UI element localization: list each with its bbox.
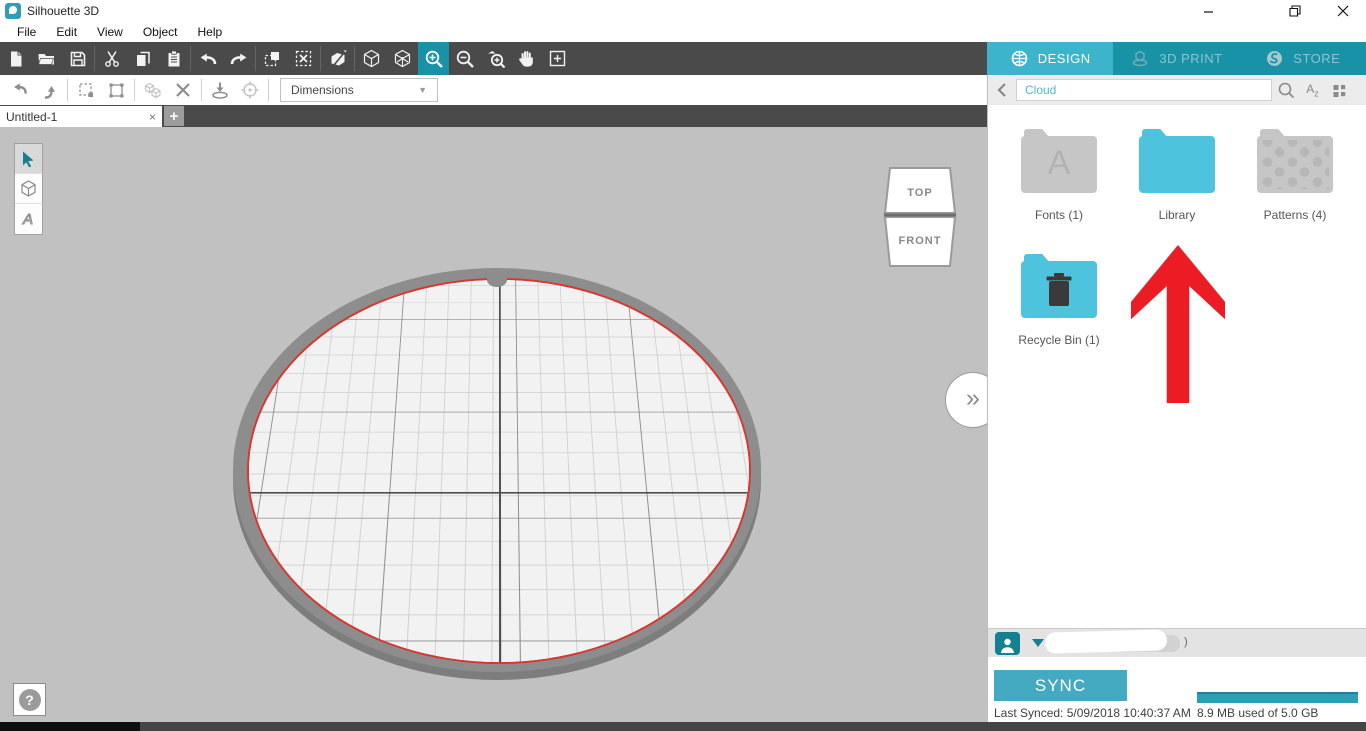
tab-design[interactable]: DESIGN bbox=[987, 42, 1113, 75]
recycle-bin-folder-icon bbox=[1021, 261, 1097, 318]
document-tab[interactable]: Untitled-1 × bbox=[0, 106, 162, 127]
library-navigation-bar: Cloud Az bbox=[987, 75, 1366, 105]
pan-button[interactable] bbox=[511, 42, 542, 75]
account-name-fragment: ) bbox=[1184, 636, 1188, 648]
deselect-button[interactable] bbox=[288, 42, 319, 75]
transform-box-icon bbox=[107, 81, 126, 100]
menu-object[interactable]: Object bbox=[134, 23, 189, 41]
delete-x-icon bbox=[174, 81, 192, 99]
cube-solid-icon bbox=[393, 49, 412, 68]
toolbar-separator bbox=[190, 46, 191, 71]
delete-button[interactable] bbox=[168, 76, 198, 104]
folder-item-library[interactable]: Library bbox=[1118, 127, 1236, 222]
back-button[interactable] bbox=[988, 76, 1016, 104]
panel-tab-bar: DESIGN 3D PRINT STORE bbox=[987, 42, 1366, 75]
center-target-icon bbox=[240, 80, 260, 100]
fit-to-window-icon bbox=[548, 49, 567, 68]
grid-view-icon bbox=[1332, 83, 1347, 98]
menu-help[interactable]: Help bbox=[189, 23, 234, 41]
window-title: Silhouette 3D bbox=[27, 4, 99, 18]
cut-scissors-icon bbox=[103, 50, 121, 68]
cursor-arrow-icon bbox=[20, 150, 37, 168]
redo-button[interactable] bbox=[223, 42, 254, 75]
svg-text:A: A bbox=[22, 211, 33, 228]
new-tab-button[interactable]: + bbox=[164, 106, 184, 126]
zoom-selection-button[interactable] bbox=[480, 42, 511, 75]
dimensions-dropdown-label: Dimensions bbox=[291, 83, 354, 97]
sort-az-icon: Az bbox=[1306, 82, 1319, 98]
toolbar-separator bbox=[255, 46, 256, 71]
slice-cube-icon bbox=[328, 49, 348, 68]
minimize-button[interactable] bbox=[1186, 0, 1231, 22]
group-cubes-button[interactable] bbox=[138, 76, 168, 104]
platform-build-area[interactable] bbox=[247, 278, 751, 664]
pan-hand-icon bbox=[517, 49, 536, 68]
scale-box-icon bbox=[77, 81, 96, 100]
view-cube-top-label[interactable]: TOP bbox=[881, 187, 959, 199]
rotate-left-icon bbox=[9, 81, 29, 99]
zoom-out-button[interactable] bbox=[449, 42, 480, 75]
library-folder-row: Recycle Bin (1) bbox=[1000, 252, 1118, 347]
polka-dots-pattern bbox=[1261, 140, 1329, 189]
tab-3d-print-label: 3D PRINT bbox=[1159, 51, 1222, 66]
copy-icon bbox=[134, 50, 152, 68]
red-annotation-arrow bbox=[1131, 245, 1225, 403]
rotate-up-icon bbox=[40, 81, 58, 100]
tab-close-icon[interactable]: × bbox=[149, 110, 156, 124]
account-name-redaction bbox=[1045, 629, 1168, 653]
toolbar-separator bbox=[354, 46, 355, 71]
platform-grid bbox=[247, 278, 751, 664]
redo-icon bbox=[229, 50, 249, 68]
sync-button[interactable]: SYNC bbox=[994, 670, 1127, 701]
paste-clipboard-icon bbox=[165, 50, 183, 68]
open-file-button[interactable] bbox=[31, 42, 62, 75]
new-document-button[interactable] bbox=[0, 42, 31, 75]
folder-item-patterns[interactable]: Patterns (4) bbox=[1236, 127, 1354, 222]
app-logo-icon bbox=[5, 3, 21, 19]
grid-axis-vertical bbox=[499, 278, 501, 664]
transform-box-button[interactable] bbox=[101, 76, 131, 104]
secondary-toolbar: Dimensions ▼ bbox=[0, 75, 987, 105]
close-button[interactable] bbox=[1320, 0, 1365, 22]
view-cube-front-label[interactable]: FRONT bbox=[881, 235, 959, 247]
center-object-button[interactable] bbox=[235, 76, 265, 104]
slice-button[interactable] bbox=[322, 42, 353, 75]
search-button[interactable] bbox=[1272, 76, 1299, 104]
select-tool[interactable] bbox=[15, 144, 42, 174]
select-all-icon bbox=[263, 49, 282, 68]
chevron-down-icon: ▼ bbox=[418, 85, 427, 95]
folder-label: Library bbox=[1159, 208, 1196, 222]
copy-button[interactable] bbox=[127, 42, 158, 75]
main-toolbar bbox=[0, 42, 987, 75]
print-platform bbox=[233, 268, 761, 680]
rotate-left-button[interactable] bbox=[4, 76, 34, 104]
menu-edit[interactable]: Edit bbox=[47, 23, 88, 41]
panel-expand-button[interactable]: » bbox=[945, 372, 987, 428]
fit-to-window-button[interactable] bbox=[542, 42, 573, 75]
sync-section: SYNC Last Synced: 5/09/2018 10:40:37 AM … bbox=[987, 657, 1366, 722]
text-tool-icon: A bbox=[20, 209, 38, 229]
dimensions-dropdown[interactable]: Dimensions ▼ bbox=[280, 78, 438, 102]
save-button[interactable] bbox=[62, 42, 93, 75]
open-folder-icon bbox=[37, 50, 56, 68]
minimize-icon bbox=[1203, 6, 1214, 17]
last-synced-text: Last Synced: 5/09/2018 10:40:37 AM bbox=[994, 706, 1191, 720]
zoom-out-icon bbox=[455, 49, 475, 69]
tab-design-label: DESIGN bbox=[1038, 51, 1091, 66]
account-button[interactable] bbox=[995, 632, 1020, 655]
storage-usage-text: 8.9 MB used of 5.0 GB bbox=[1197, 706, 1318, 720]
grid-axis-horizontal bbox=[247, 492, 751, 494]
scale-box-button[interactable] bbox=[71, 76, 101, 104]
window-bottom-edge bbox=[0, 722, 1366, 731]
help-button[interactable]: ? bbox=[13, 683, 46, 716]
toolbar-separator bbox=[201, 79, 202, 101]
design-globe-icon bbox=[1010, 49, 1029, 68]
zoom-selection-icon bbox=[486, 49, 506, 69]
help-icon: ? bbox=[19, 689, 41, 711]
group-cubes-icon bbox=[143, 81, 163, 100]
paste-button[interactable] bbox=[158, 42, 189, 75]
cube-wireframe-icon bbox=[362, 49, 381, 68]
toolbar-separator bbox=[134, 79, 135, 101]
deselect-icon bbox=[294, 49, 313, 68]
cube-solid-button[interactable] bbox=[387, 42, 418, 75]
3d-print-icon bbox=[1130, 49, 1150, 68]
shapes-tool[interactable] bbox=[15, 174, 42, 204]
toolbar-separator bbox=[94, 46, 95, 71]
menu-view[interactable]: View bbox=[88, 23, 134, 41]
account-dropdown-caret[interactable] bbox=[1032, 639, 1044, 647]
folder-label: Fonts (1) bbox=[1035, 208, 1083, 222]
toolbar-separator bbox=[320, 46, 321, 71]
zoom-in-icon bbox=[424, 49, 444, 69]
document-tab-label: Untitled-1 bbox=[6, 110, 57, 124]
folder-label: Recycle Bin (1) bbox=[1018, 333, 1099, 347]
platform-notch bbox=[487, 273, 507, 287]
view-cube-faces bbox=[881, 165, 959, 269]
toolbar-separator bbox=[67, 79, 68, 101]
cube-tool-icon bbox=[19, 179, 38, 198]
view-cube[interactable]: TOP FRONT bbox=[881, 165, 959, 269]
chevron-left-icon bbox=[995, 82, 1009, 98]
trash-can-icon bbox=[1044, 272, 1074, 308]
menu-bar: File Edit View Object Help bbox=[0, 22, 1366, 42]
undo-icon bbox=[198, 50, 218, 68]
document-tab-bar: Untitled-1 × + bbox=[0, 105, 987, 127]
drop-to-platform-button[interactable] bbox=[205, 76, 235, 104]
library-panel: A Fonts (1) Library Patterns (4) Recycle bbox=[987, 105, 1366, 628]
folder-item-fonts[interactable]: A Fonts (1) bbox=[1000, 127, 1118, 222]
grid-view-button[interactable] bbox=[1326, 76, 1353, 104]
cloud-path-input[interactable]: Cloud bbox=[1016, 79, 1272, 101]
store-logo-icon bbox=[1265, 49, 1284, 68]
toolbar-separator bbox=[268, 79, 269, 101]
search-icon bbox=[1277, 81, 1295, 99]
title-bar: Silhouette 3D bbox=[0, 0, 1366, 22]
account-bar: ) bbox=[987, 628, 1366, 657]
cube-wireframe-button[interactable] bbox=[356, 42, 387, 75]
select-all-button[interactable] bbox=[257, 42, 288, 75]
menu-file[interactable]: File bbox=[8, 23, 47, 41]
undo-button[interactable] bbox=[192, 42, 223, 75]
zoom-in-button[interactable] bbox=[418, 42, 449, 75]
restore-button[interactable] bbox=[1272, 0, 1317, 22]
letter-a-glyph: A bbox=[1021, 144, 1097, 183]
sort-az-button[interactable]: Az bbox=[1299, 76, 1326, 104]
drop-to-platform-icon bbox=[210, 81, 230, 100]
close-icon bbox=[1337, 5, 1349, 17]
library-folder-icon bbox=[1139, 136, 1215, 193]
user-icon bbox=[998, 636, 1017, 655]
library-folder-row: A Fonts (1) Library Patterns (4) bbox=[1000, 127, 1354, 222]
rotate-up-button[interactable] bbox=[34, 76, 64, 104]
folder-item-recycle-bin[interactable]: Recycle Bin (1) bbox=[1000, 252, 1118, 347]
silhouette-3d-window: Silhouette 3D File Edit View Object Help bbox=[0, 0, 1366, 731]
patterns-folder-icon bbox=[1257, 136, 1333, 193]
cut-button[interactable] bbox=[96, 42, 127, 75]
folder-label: Patterns (4) bbox=[1264, 208, 1327, 222]
fonts-folder-icon: A bbox=[1021, 136, 1097, 193]
tool-palette: A bbox=[14, 143, 43, 235]
tab-store[interactable]: STORE bbox=[1240, 42, 1366, 75]
text-tool[interactable]: A bbox=[15, 204, 42, 234]
design-canvas[interactable]: A TOP FRONT » ? bbox=[0, 127, 987, 722]
new-document-icon bbox=[7, 50, 25, 68]
tab-store-label: STORE bbox=[1293, 51, 1340, 66]
restore-icon bbox=[1289, 5, 1301, 17]
save-icon bbox=[69, 50, 87, 68]
tab-3d-print[interactable]: 3D PRINT bbox=[1113, 42, 1239, 75]
storage-usage-bar bbox=[1197, 692, 1358, 703]
